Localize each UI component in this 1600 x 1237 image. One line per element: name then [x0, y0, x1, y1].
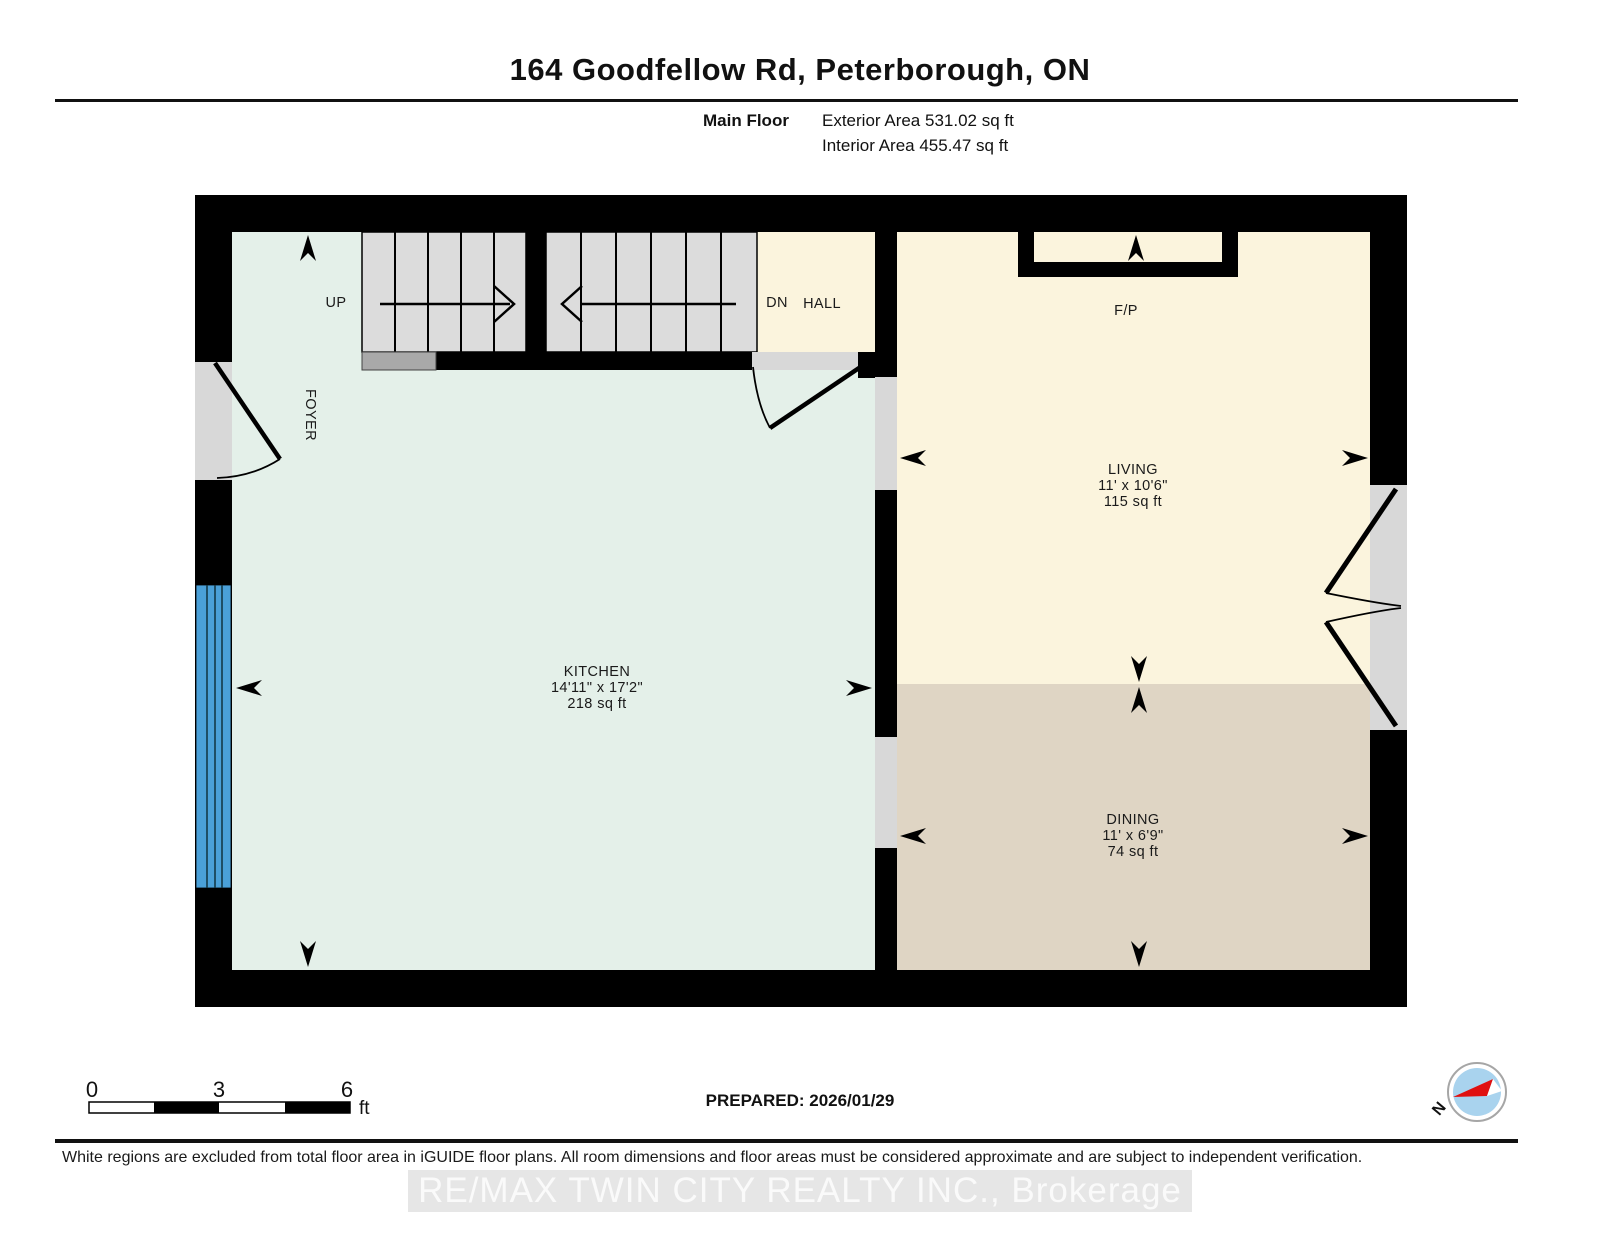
- room-hall-floor: [757, 232, 875, 352]
- dining-area: 74 sq ft: [1108, 844, 1159, 860]
- stair-divider-wall: [526, 232, 546, 352]
- footer-disclaimer: White regions are excluded from total fl…: [62, 1149, 1362, 1167]
- kitchen-living-opening: [875, 377, 897, 490]
- hall-door-opening: [752, 352, 858, 370]
- kitchen-area: 218 sq ft: [567, 696, 626, 712]
- stairs-down-label: DN: [766, 295, 788, 311]
- living-dimensions: 11' x 10'6": [1098, 478, 1168, 494]
- fireplace-nook: [1018, 232, 1238, 277]
- kitchen-dining-opening: [875, 737, 897, 848]
- staircase-down: [546, 232, 757, 352]
- floor-plan-canvas: KITCHEN 14'11" x 17'2" 218 sq ft LIVING …: [0, 0, 1600, 1237]
- brokerage-watermark: RE/MAX TWIN CITY REALTY INC., Brokerage: [408, 1170, 1192, 1212]
- hall-door-hinge-wall: [858, 352, 897, 378]
- living-name: LIVING: [1108, 462, 1158, 478]
- prepared-date: PREPARED: 2026/01/29: [0, 1091, 1600, 1111]
- staircase-up: [362, 232, 526, 352]
- floor-plan-page: 164 Goodfellow Rd, Peterborough, ON Main…: [0, 0, 1600, 1237]
- room-living-floor: [897, 232, 1370, 684]
- hall-name: HALL: [803, 296, 841, 312]
- stairs-lower-wall: [436, 352, 768, 370]
- dining-name: DINING: [1106, 812, 1159, 828]
- stairs-up-label: UP: [326, 295, 347, 311]
- kitchen-name: KITCHEN: [564, 664, 630, 680]
- fireplace-label: F/P: [1114, 303, 1138, 319]
- footer-divider: [55, 1139, 1518, 1143]
- window-left-wall: [196, 585, 231, 888]
- living-area: 115 sq ft: [1104, 494, 1162, 510]
- stair-landing-step: [362, 352, 436, 370]
- foyer-name: FOYER: [302, 389, 318, 441]
- watermark-row: RE/MAX TWIN CITY REALTY INC., Brokerage: [0, 1170, 1600, 1212]
- kitchen-dimensions: 14'11" x 17'2": [551, 680, 643, 696]
- dining-dimensions: 11' x 6'9": [1102, 828, 1163, 844]
